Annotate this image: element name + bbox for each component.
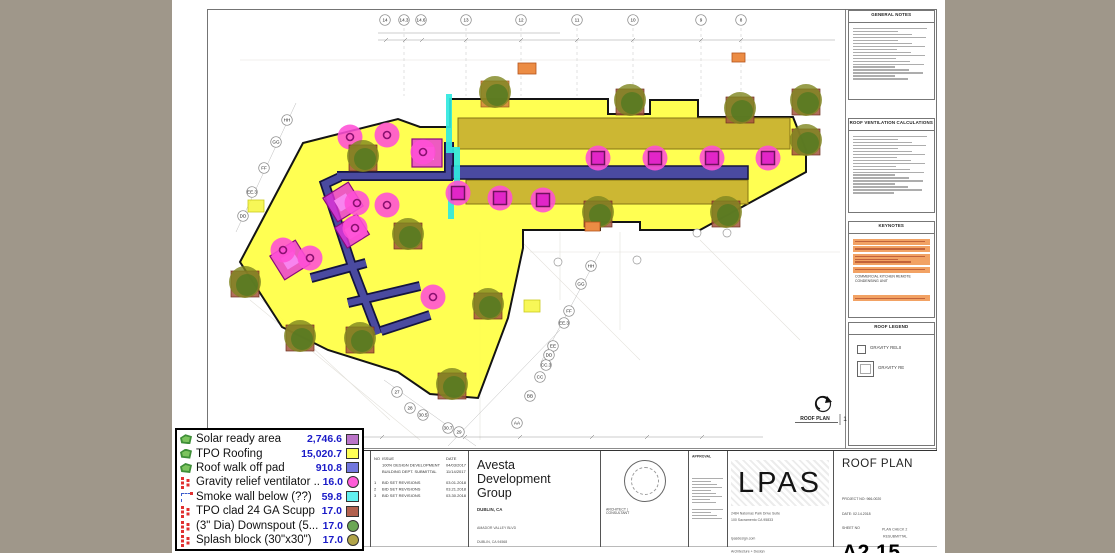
text-line (853, 157, 897, 158)
roof-legend-item: GRAVITY RELIEF VENTILATOR (857, 345, 926, 354)
svg-text:11: 11 (575, 18, 580, 23)
roof-legend-item-label: GRAVITY RELIEF VENTILATOR (878, 365, 904, 370)
legend-item-tpo-roofing[interactable]: TPO Roofing 15,020.7 (180, 446, 359, 460)
text-line (853, 148, 898, 149)
text-line (853, 160, 911, 161)
north-arrow-icon (816, 396, 833, 412)
legend-value: 17.0 (323, 520, 343, 532)
text-line (692, 502, 716, 503)
text-line (692, 509, 723, 510)
svg-text:28: 28 (407, 406, 413, 411)
color-swatch (346, 491, 359, 502)
svg-text:EE: EE (550, 344, 556, 349)
client-address-2: DUBLIN, CA 94568 (477, 539, 535, 546)
svg-text:DD: DD (546, 353, 553, 358)
svg-text:14.3: 14.3 (400, 18, 409, 23)
svg-text:AA: AA (514, 421, 521, 426)
keynotes-body: COMMERCIAL KITCHEN REMOTE CONDENSING UNI… (849, 234, 934, 306)
svg-text:FF: FF (566, 309, 572, 314)
text-line (853, 166, 896, 167)
legend-item-gravity-relief-ventilator[interactable]: Gravity relief ventilator ... 16.0 (180, 475, 359, 489)
text-line (853, 72, 923, 73)
text-line (692, 481, 711, 482)
text-line (853, 186, 908, 187)
plan-title-label: ROOF PLAN 1 (795, 414, 847, 425)
legend-label: Splash block (30"x30") (196, 534, 321, 546)
text-line (853, 177, 909, 178)
text-line (853, 58, 896, 59)
vent-calc-header: ROOF VENTILATION CALCULATIONS (849, 119, 934, 131)
text-line (855, 259, 898, 260)
approval-text (692, 509, 724, 519)
architect-stamp (624, 460, 666, 502)
legend-label: Solar ready area (196, 433, 305, 445)
text-line (855, 256, 925, 257)
svg-text:30.5: 30.5 (419, 413, 428, 418)
color-swatch (346, 462, 359, 473)
count-icon (180, 476, 194, 488)
svg-text:HH: HH (284, 118, 291, 123)
roof-legend-title: ROOF LEGEND (849, 324, 934, 329)
sheet-info-block: ROOF PLAN PROJECT NO: 966-0020 DATE: 02.… (833, 451, 937, 547)
text-line (853, 55, 925, 56)
svg-text:FF: FF (261, 166, 267, 171)
text-line (853, 34, 912, 35)
legend-value: 59.8 (322, 491, 342, 503)
roof-legend-item-label: GRAVITY RELIEF VENTILATOR (870, 345, 901, 350)
text-line (853, 142, 912, 143)
text-line (853, 145, 926, 146)
svg-text:EE.3: EE.3 (559, 321, 569, 326)
general-notes-body (849, 23, 934, 84)
issue-desc: BUILDING DEPT. SUBMITTAL (382, 469, 446, 475)
text-line (853, 69, 909, 70)
firm-contact: lpasdesign.com (731, 536, 781, 542)
svg-text:CC.3: CC.3 (541, 363, 552, 368)
svg-text:10: 10 (630, 18, 636, 23)
text-line (853, 163, 925, 164)
text-line (855, 241, 925, 242)
detail-markers (554, 229, 731, 266)
text-line (853, 174, 895, 175)
text-line (692, 515, 717, 516)
svg-text:9: 9 (700, 18, 703, 23)
text-line (853, 180, 923, 181)
text-line (853, 169, 910, 170)
ventilator-symbol-large (857, 361, 874, 377)
plan-check-note-1: PLAN CHECK 2 (882, 528, 907, 532)
svg-text:12: 12 (518, 18, 524, 23)
plan-check-note-2: RESUBMITTAL (882, 535, 907, 539)
sheet-number: A2.15 (842, 541, 929, 553)
legend-label: Gravity relief ventilator ... (196, 476, 321, 488)
svg-text:ROOF PLAN: ROOF PLAN (800, 416, 830, 422)
text-line (692, 496, 722, 497)
issue-row: BUILDING DEPT. SUBMITTAL 11/14/2017 (374, 469, 472, 475)
client-block: Avesta Development Group DUBLIN, CA AMAD… (468, 451, 600, 547)
issue-no: 3 (374, 493, 382, 499)
svg-text:29: 29 (456, 430, 462, 435)
text-line (855, 261, 911, 262)
area-icon (180, 433, 194, 445)
text-line (853, 78, 908, 79)
color-swatch (347, 534, 359, 546)
firm-tagline: Architecture + Design (731, 549, 781, 553)
text-line (853, 37, 926, 38)
text-line (853, 172, 924, 173)
svg-text:DD: DD (240, 214, 247, 219)
legend-value: 15,020.7 (301, 448, 342, 460)
vent-calc-title: ROOF VENTILATION CALCULATIONS (849, 120, 934, 125)
text-line (853, 66, 895, 67)
general-notes-title: GENERAL NOTES (849, 12, 934, 17)
keynote-row: COMMERCIAL KITCHEN REMOTE CONDENSING UNI… (853, 274, 930, 294)
legend-item-smoke-wall-below[interactable]: Smoke wall below (??) 59.8 (180, 490, 359, 504)
firm-block: LPAS 2484 Natomas Park Drive Suite 100 S… (727, 451, 833, 547)
sheet-no-label: SHEET NO (842, 525, 886, 532)
text-line (692, 487, 722, 488)
stamp-block: ARCHITECT | CONSULTANT (600, 451, 688, 547)
svg-text:27: 27 (394, 390, 400, 395)
roof-legend-panel: ROOF LEGEND GRAVITY RELIEF VENTILATOR GR… (848, 322, 935, 446)
legend-item-downspout[interactable]: (3" Dia) Downspout (5... 17.0 (180, 518, 359, 532)
text-line (692, 490, 711, 491)
svg-text:13: 13 (463, 18, 469, 23)
svg-text:8: 8 (740, 18, 743, 23)
svg-text:1: 1 (843, 416, 847, 423)
firm-logo-text: LPAS (738, 467, 822, 500)
app-canvas: 1414.3 14.613 1211 109 8 HHGG FFEE.3 DD … (0, 0, 1115, 553)
legend-value: 910.8 (316, 462, 342, 474)
area-icon (180, 462, 194, 474)
area-icon (180, 448, 194, 460)
text-line (692, 484, 717, 485)
color-swatch (347, 520, 359, 532)
client-name: Avesta Development Group (477, 459, 587, 500)
count-icon (180, 505, 194, 517)
text-line (692, 512, 711, 513)
legend-label: TPO Roofing (196, 448, 299, 460)
client-city: DUBLIN, CA (477, 507, 540, 512)
text-line (853, 49, 897, 50)
keynote-row (853, 246, 930, 252)
roof-ventilation-calcs-panel: ROOF VENTILATION CALCULATIONS (848, 118, 935, 213)
takeoff-legend: Solar ready area 2,746.6 TPO Roofing 15,… (175, 428, 364, 551)
color-swatch (346, 506, 359, 517)
svg-text:EE.3: EE.3 (247, 190, 257, 195)
client-address-1: AMADOR VALLEY BLVD (477, 525, 535, 532)
project-number: PROJECT NO: 966-0020 (842, 496, 886, 503)
svg-text:14.6: 14.6 (417, 18, 426, 23)
legend-value: 17.0 (323, 534, 343, 546)
svg-text:HH: HH (588, 264, 595, 269)
text-line (855, 298, 925, 299)
text-line (692, 499, 710, 500)
keynote-row (853, 295, 930, 301)
text-line (853, 64, 924, 65)
legend-value: 2,746.6 (307, 433, 342, 445)
legend-value: 17.0 (322, 505, 342, 517)
keynotes-title: KEYNOTES (849, 223, 934, 228)
svg-text:GG: GG (577, 282, 585, 287)
segment-icon (180, 491, 194, 503)
sheet-title: ROOF PLAN (842, 458, 929, 470)
keynote-row (853, 254, 930, 265)
text-line (855, 269, 925, 270)
legend-label: (3" Dia) Downspout (5... (196, 520, 321, 532)
general-notes-header: GENERAL NOTES (849, 11, 934, 23)
sheet-date: DATE: 02.14.2018 (842, 511, 886, 518)
text-line (853, 75, 895, 76)
legend-label: TPO clad 24 GA Scupp (196, 505, 320, 517)
issue-desc: BID SET REVISIONS (382, 493, 446, 499)
text-line (692, 493, 716, 494)
issue-table: NO ISSUE DATE 100% DESIGN DEVELOPMENT 04… (370, 451, 468, 547)
text-line (853, 192, 894, 193)
svg-text:CC: CC (537, 375, 544, 380)
legend-label: Roof walk off pad (196, 462, 314, 474)
legend-value: 16.0 (323, 476, 343, 488)
svg-text:GG: GG (272, 140, 280, 145)
text-line (853, 61, 910, 62)
text-line (853, 28, 927, 29)
grid-lines (404, 28, 741, 98)
text-line (853, 43, 912, 44)
text-line (692, 518, 722, 519)
vent-calc-body (849, 131, 934, 198)
text-line (855, 248, 925, 249)
firm-logo: LPAS (731, 460, 829, 506)
legend-item-splash-block[interactable]: Splash block (30"x30") 17.0 (180, 533, 359, 547)
legend-item-roof-walk-off-pad[interactable]: Roof walk off pad 910.8 (180, 461, 359, 475)
keynote-row (853, 267, 930, 273)
approval-text (692, 478, 724, 503)
text-line (692, 478, 723, 479)
legend-label: Smoke wall below (??) (196, 491, 320, 503)
text-line (853, 151, 912, 152)
color-swatch (346, 434, 359, 445)
keynote-text: COMMERCIAL KITCHEN REMOTE CONDENSING UNI… (855, 275, 928, 284)
ventilator-symbol-small (857, 345, 866, 354)
text-line (853, 139, 898, 140)
text-line (853, 136, 927, 137)
count-icon (180, 520, 194, 532)
text-line (853, 31, 898, 32)
text-line (853, 189, 922, 190)
text-line (853, 46, 925, 47)
text-line (853, 154, 925, 155)
color-swatch (347, 476, 359, 488)
approval-block: APPROVAL (688, 451, 727, 547)
roof-legend-item: GRAVITY RELIEF VENTILATOR (857, 361, 926, 377)
roof-legend-body: GRAVITY RELIEF VENTILATOR GRAVITY RELIEF… (849, 335, 934, 387)
keynotes-header: KEYNOTES (849, 222, 934, 234)
stamp-caption: ARCHITECT | CONSULTANT (606, 508, 647, 515)
color-swatch (346, 448, 359, 459)
keynotes-panel: KEYNOTES COMMERCIAL KITCHEN REMOTE CONDE… (848, 221, 935, 318)
text-line (853, 52, 911, 53)
roof-legend-header: ROOF LEGEND (849, 323, 934, 335)
legend-item-solar-ready-area[interactable]: Solar ready area 2,746.6 (180, 432, 359, 446)
count-icon (180, 534, 194, 546)
firm-address: 2484 Natomas Park Drive Suite 100 Sacram… (731, 511, 781, 524)
text-line (853, 183, 895, 184)
issue-no (374, 469, 382, 475)
legend-item-tpo-clad-scupper[interactable]: TPO clad 24 GA Scupp 17.0 (180, 504, 359, 518)
keynote-row (853, 239, 930, 245)
text-line (853, 40, 898, 41)
svg-text:30.7: 30.7 (444, 426, 453, 431)
approval-label: APPROVAL (692, 455, 708, 459)
general-notes-panel: GENERAL NOTES (848, 10, 935, 100)
svg-text:14: 14 (382, 18, 388, 23)
issue-row: 3 BID SET REVISIONS 03.30.2018 (374, 493, 472, 499)
svg-text:BB: BB (527, 394, 533, 399)
